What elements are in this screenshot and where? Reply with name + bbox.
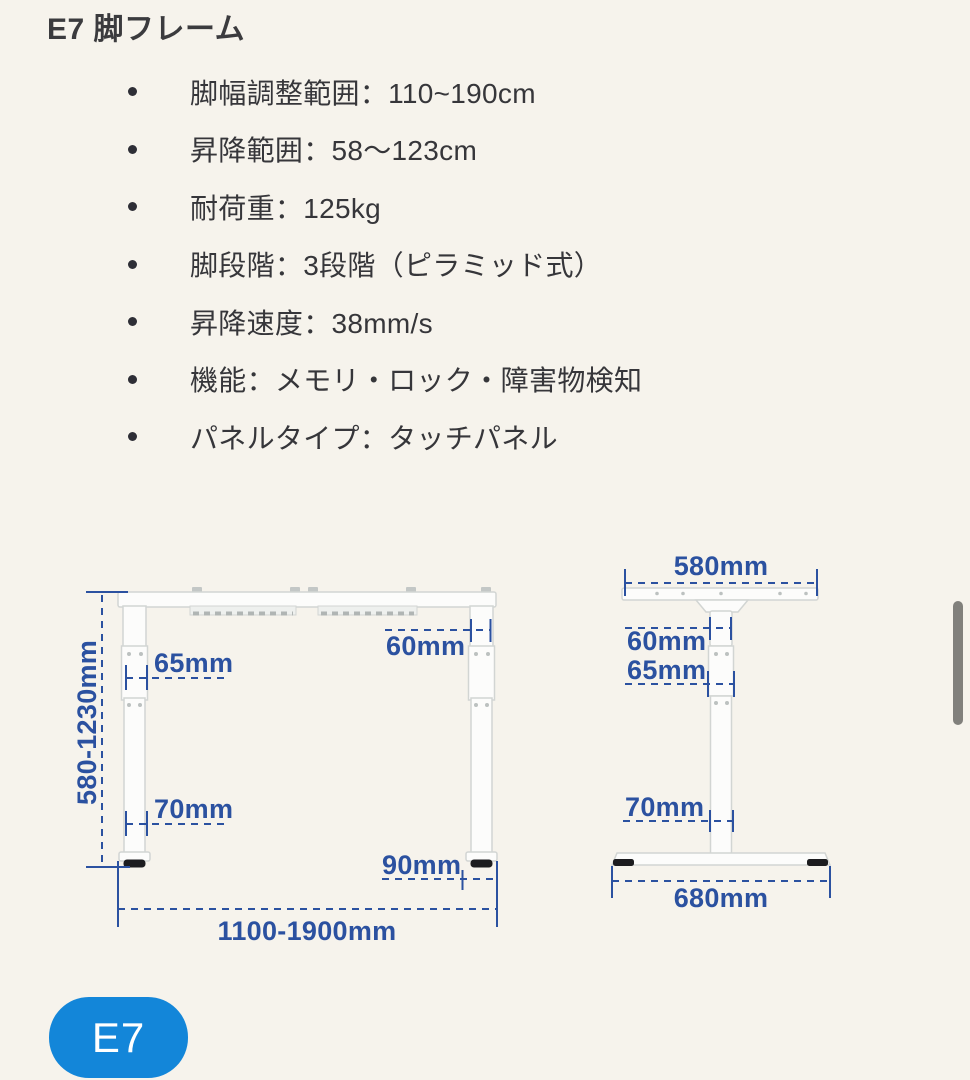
- spec-item-lift-range: 昇降範囲：58〜123cm: [0, 121, 970, 179]
- bolt-icon: [725, 652, 729, 656]
- spec-text: 機能：メモリ・ロック・障害物検知: [190, 359, 642, 399]
- spec-item-functions: 機能：メモリ・ロック・障害物検知: [0, 351, 970, 409]
- product-spec-page: { "page": { "title": "E7 脚フレーム", "specs"…: [0, 0, 970, 1080]
- bolt-icon: [474, 703, 478, 707]
- dim-label-bottom-column: 70mm: [154, 794, 233, 824]
- dim-label-height: 580-1230mm: [72, 640, 102, 805]
- spec-item-leg-stages: 脚段階：3段階（ピラミッド式）: [0, 236, 970, 294]
- bullet-icon: [128, 87, 137, 96]
- right-foot-pad: [471, 860, 493, 868]
- dimension-diagram: 580-1230mm 65mm 70mm 60mm 90mm 1100-1900…: [0, 540, 970, 980]
- column-bottom-segment: [711, 696, 732, 854]
- e7-variant-badge[interactable]: E7: [49, 997, 188, 1078]
- dim-label-foot: 90mm: [382, 850, 461, 880]
- dim-label-top-column: 60mm: [386, 631, 465, 661]
- bolt-icon: [719, 592, 723, 596]
- beam: [118, 592, 496, 607]
- spec-item-load-capacity: 耐荷重：125kg: [0, 178, 970, 236]
- bolt-icon: [474, 652, 478, 656]
- bolt-icon: [714, 701, 718, 705]
- bracket-collar: [696, 600, 748, 612]
- left-leg-top-segment: [123, 606, 146, 648]
- bolt-icon: [655, 592, 659, 596]
- bolt-icon: [714, 652, 718, 656]
- spec-text: 昇降範囲：58〜123cm: [190, 129, 477, 169]
- spec-item-leg-width-range: 脚幅調整範囲：110~190cm: [0, 63, 970, 121]
- bullet-icon: [128, 202, 137, 211]
- dim-label-base-depth: 680mm: [674, 883, 769, 913]
- bolt-icon: [486, 652, 490, 656]
- right-leg-mid-segment: [469, 646, 495, 700]
- bullet-icon: [128, 260, 137, 269]
- spec-text: 昇降速度：38mm/s: [190, 302, 433, 342]
- base-pad: [807, 859, 828, 866]
- bullet-icon: [128, 432, 137, 441]
- dim-label-mid-column: 65mm: [154, 648, 233, 678]
- bolt-icon: [778, 592, 782, 596]
- bolt-icon: [725, 701, 729, 705]
- spec-text: 脚段階：3段階（ピラミッド式）: [190, 244, 602, 284]
- right-leg-bottom-segment: [471, 698, 492, 854]
- bolt-icon: [127, 652, 131, 656]
- bolt-icon: [485, 703, 489, 707]
- spec-item-lift-speed: 昇降速度：38mm/s: [0, 293, 970, 351]
- dim-label-column-mid: 65mm: [627, 655, 706, 685]
- page-title: E7 脚フレーム: [47, 4, 245, 48]
- base-pad: [613, 859, 634, 866]
- dim-label-column-top: 60mm: [627, 626, 706, 656]
- bolt-icon: [139, 652, 143, 656]
- e7-variant-label: E7: [92, 1014, 145, 1062]
- spec-text: 脚幅調整範囲：110~190cm: [190, 72, 536, 112]
- dim-label-width: 1100-1900mm: [218, 916, 397, 946]
- spec-text: 耐荷重：125kg: [190, 187, 381, 227]
- left-leg-bottom-segment: [124, 698, 145, 854]
- bullet-icon: [128, 145, 137, 154]
- bolt-icon: [127, 703, 131, 707]
- bolt-icon: [138, 703, 142, 707]
- spec-text: パネルタイプ：タッチパネル: [190, 417, 558, 457]
- scrollbar-thumb[interactable]: [953, 601, 963, 725]
- column-mid-segment: [709, 646, 734, 696]
- spec-list: 脚幅調整範囲：110~190cm 昇降範囲：58〜123cm 耐荷重：125kg…: [0, 63, 970, 466]
- bullet-icon: [128, 375, 137, 384]
- bolt-icon: [804, 592, 808, 596]
- base-foot: [612, 853, 830, 865]
- bullet-icon: [128, 317, 137, 326]
- dim-label-top-bracket: 580mm: [674, 551, 769, 581]
- dim-label-column-bottom: 70mm: [625, 792, 704, 822]
- spec-item-panel-type: パネルタイプ：タッチパネル: [0, 408, 970, 466]
- bolt-icon: [681, 592, 685, 596]
